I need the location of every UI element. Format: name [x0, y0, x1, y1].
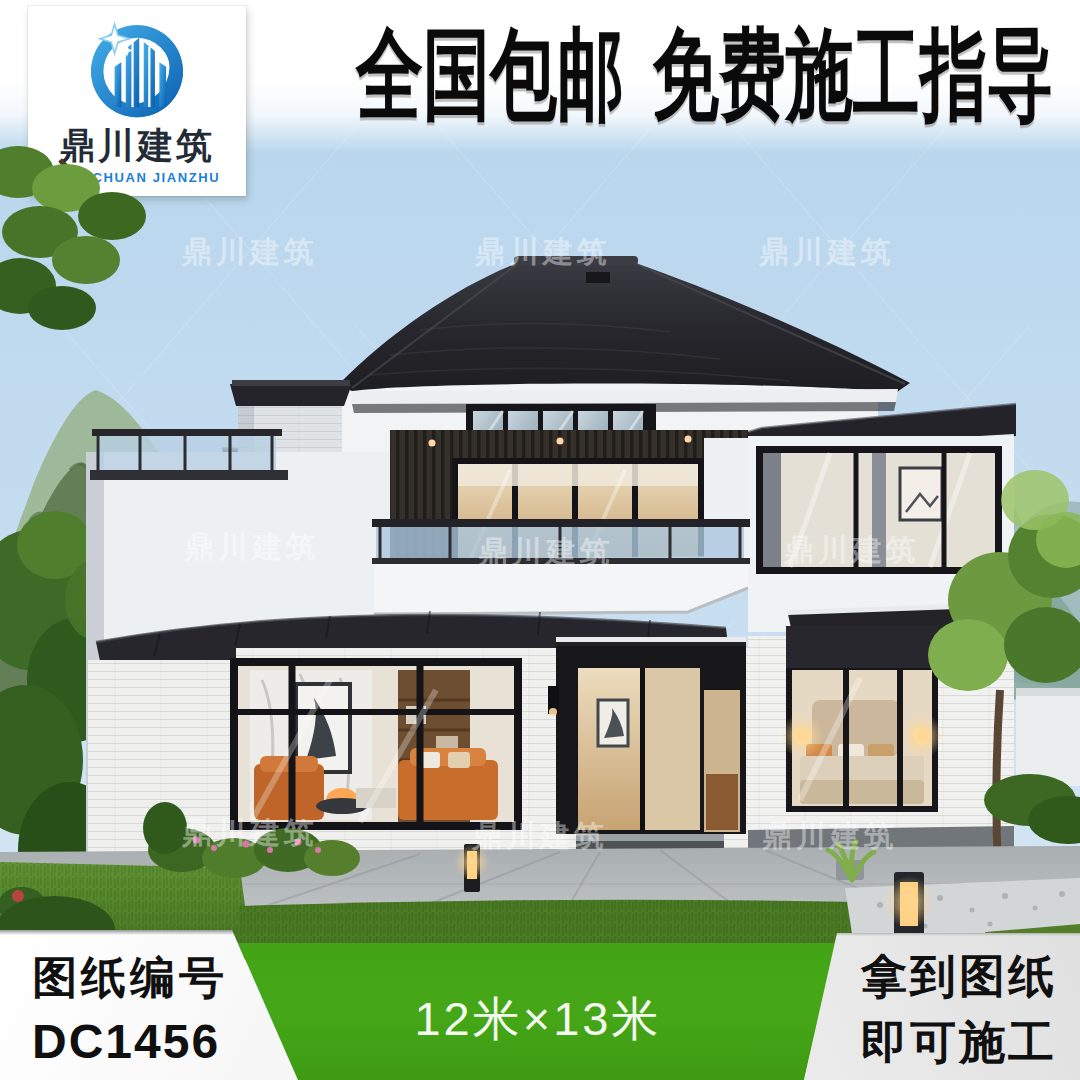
livingroom-window: [230, 658, 522, 830]
terrace-railing: [90, 429, 288, 480]
poster: 全国包邮 免费施工指导 鼎川: [0, 0, 1080, 1080]
drawing-number-label: 图纸编号: [32, 948, 228, 1008]
balcony: [372, 519, 750, 614]
entry-door: [548, 646, 746, 834]
footer-slogan-line2: 即可施工: [840, 1012, 1078, 1074]
dingchuan-logo-icon: [81, 12, 193, 126]
banner-headline: 全国包邮 免费施工指导: [356, 22, 1054, 126]
foreground-tree-icon: [0, 120, 190, 330]
drawing-number-code: DC1456: [32, 1014, 220, 1069]
bedroom-window: [780, 626, 944, 812]
footer-slogan-line1: 拿到图纸: [840, 946, 1078, 1008]
house-size: 12米×13米: [240, 988, 836, 1051]
